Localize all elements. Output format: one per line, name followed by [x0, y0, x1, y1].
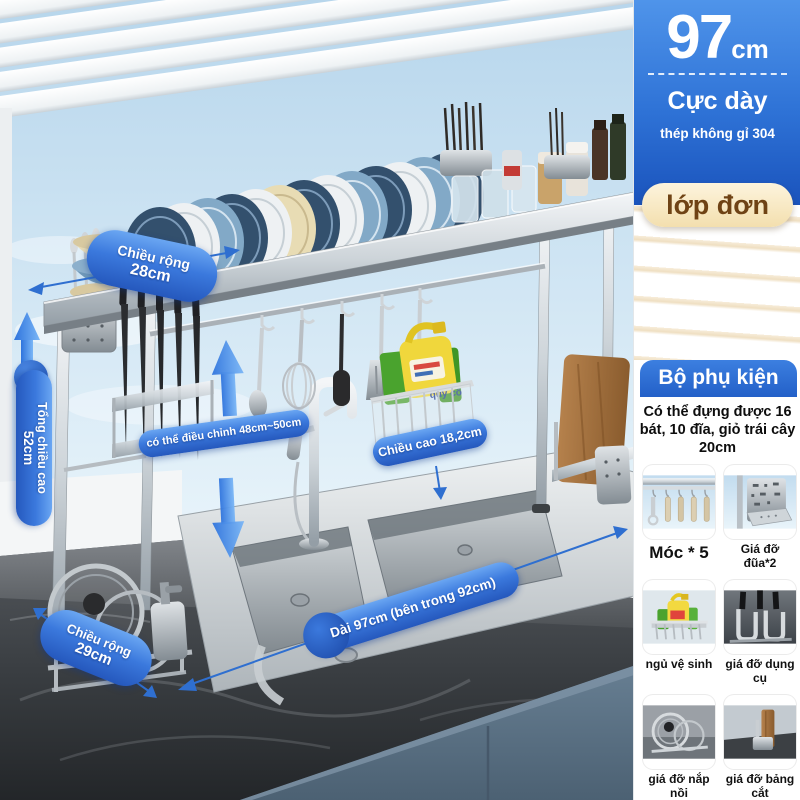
- accessory-label: Giá đỡ đũa*2: [724, 543, 796, 570]
- accessory-utensil-rack: giá đỡ dụng cụ: [724, 580, 796, 685]
- accessory-cleaning-basket: ngủ vệ sinh: [643, 580, 715, 685]
- cleaning-basket-icon: [643, 580, 715, 654]
- accessory-label: giá đỡ bảng cắt: [724, 773, 796, 800]
- chopsticks-photo: [634, 205, 800, 360]
- accessory-chopstick-holder: Giá đỡ đũa*2: [724, 465, 796, 570]
- size-line: 97cm: [634, 2, 800, 73]
- total-height-label: Tổng chiều cao: [35, 402, 49, 494]
- accessory-hooks: Móc * 5: [643, 465, 715, 570]
- accessories-grid: Móc * 5 Giá đỡ đũa*2: [634, 461, 800, 800]
- info-panel: 97cm Cực dày thép không gỉ 304 lớp đơn B…: [633, 0, 800, 800]
- cutting-board-holder-icon: [724, 695, 796, 769]
- size-value: 97: [666, 3, 731, 72]
- accessory-label: Móc * 5: [649, 543, 709, 562]
- utensil-rack-icon: [724, 580, 796, 654]
- product-listing-image: quý cô: [0, 0, 800, 800]
- total-height-annotation: Tổng chiều cao 52cm: [16, 370, 52, 526]
- accessories-header: Bộ phụ kiện: [640, 360, 797, 397]
- accessory-label: ngủ vệ sinh: [646, 658, 713, 671]
- accessory-lid-holder: giá đỡ nắp nồi: [643, 695, 715, 800]
- accessory-board-holder: giá đỡ bảng cắt: [724, 695, 796, 800]
- total-height-value: 52cm: [20, 431, 35, 466]
- accessory-label: giá đỡ dụng cụ: [724, 658, 796, 685]
- chopstick-holder-icon: [724, 465, 796, 539]
- accessory-label: giá đỡ nắp nồi: [643, 773, 715, 800]
- layer-badge: lớp đơn: [642, 183, 793, 227]
- material-text: thép không gỉ 304: [634, 126, 800, 141]
- thickness-title: Cực dày: [634, 87, 800, 116]
- hooks-icon: [643, 465, 715, 539]
- pot-lid-holder-icon: [643, 695, 715, 769]
- size-banner: 97cm Cực dày thép không gỉ 304 lớp đơn: [634, 0, 800, 205]
- size-unit: cm: [731, 34, 769, 64]
- capacity-text: Có thể đựng được 16 bát, 10 đĩa, giỏ trá…: [634, 397, 800, 461]
- dashed-divider: [648, 73, 787, 75]
